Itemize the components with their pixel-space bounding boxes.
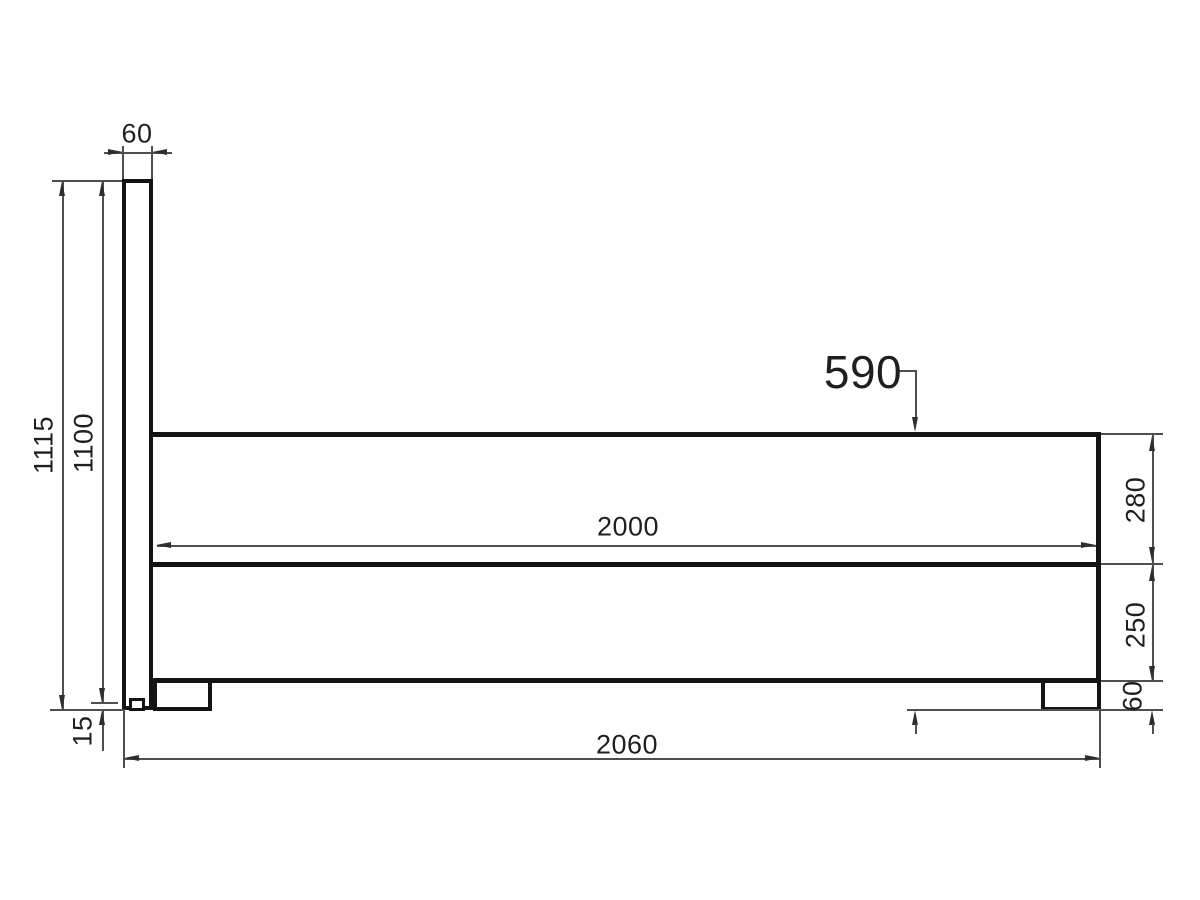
dimension-line-280 [1152, 435, 1154, 563]
leader-590-vertical [915, 370, 917, 420]
dim-label-platform-top-height: 590 [824, 345, 902, 399]
extension-line-right-mid [1101, 563, 1163, 565]
dim-label-lower-section-depth: 250 [1121, 602, 1152, 649]
arrow-left-icon [152, 149, 167, 155]
dim-label-headboard-width: 60 [121, 119, 152, 150]
foot-leg [1041, 679, 1101, 711]
arrow-up-icon [1149, 710, 1155, 725]
dimension-line-250 [1152, 565, 1154, 681]
headboard-glide-foot [129, 698, 145, 711]
arrow-right-icon [108, 149, 123, 155]
dim-label-glide-foot-height: 15 [68, 715, 99, 746]
dimension-line-60-right-tail [1152, 724, 1154, 734]
dim-label-leg-height: 60 [1118, 680, 1149, 711]
arrow-up-icon [99, 181, 105, 196]
arrow-up-icon [912, 710, 918, 725]
arrow-right-icon [1085, 755, 1100, 761]
arrow-left-icon [156, 542, 171, 548]
arrow-right-icon [1081, 542, 1096, 548]
dimension-line-2000 [157, 545, 1096, 547]
extension-line-right-top [1101, 433, 1163, 435]
head-leg [153, 679, 212, 711]
arrow-up-icon [99, 710, 105, 725]
leader-590-floor-tail [915, 724, 917, 734]
dim-label-overall-length: 2060 [596, 730, 658, 761]
arrow-down-icon [1149, 666, 1155, 681]
dim-label-headboard-panel-height: 1100 [69, 413, 100, 473]
arrow-up-icon [59, 181, 65, 196]
foot-end-edge [1096, 432, 1101, 683]
arrow-left-icon [124, 755, 139, 761]
arrow-down-icon [59, 695, 65, 710]
rail-divider-edge [153, 562, 1096, 567]
platform-bottom-edge [150, 678, 1101, 683]
platform-top-edge [150, 432, 1101, 437]
arrow-up-icon [1149, 566, 1155, 581]
arrow-up-icon [1149, 436, 1155, 451]
technical-drawing: 60 1115 1100 590 2000 280 250 60 15 2060 [0, 0, 1200, 900]
arrow-down-icon [1149, 547, 1155, 562]
arrow-down-icon [912, 417, 918, 432]
arrow-down-icon [99, 688, 105, 703]
dim-label-upper-section-depth: 280 [1121, 477, 1152, 524]
dimension-line-1100 [102, 181, 104, 703]
headboard-panel [122, 179, 153, 710]
dim-label-overall-height: 1115 [29, 416, 60, 474]
dimension-line-1115 [62, 181, 64, 710]
dim-label-inner-mattress-length: 2000 [597, 512, 659, 543]
